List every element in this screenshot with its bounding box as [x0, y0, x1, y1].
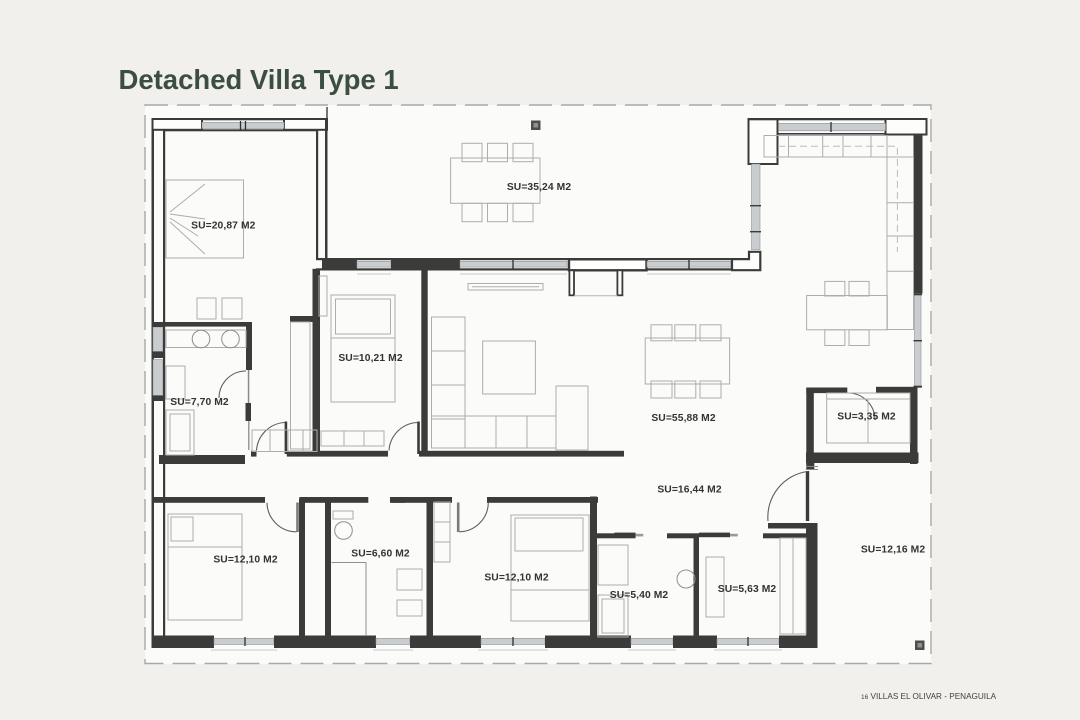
svg-text:SU=6,60 M2: SU=6,60 M2: [351, 549, 410, 560]
svg-text:16 VILLAS EL OLIVAR - PENAGUI: 16 VILLAS EL OLIVAR - PENAGUILA: [861, 692, 997, 701]
svg-text:SU=16,44 M2: SU=16,44 M2: [657, 485, 722, 496]
svg-text:SU=5,63 M2: SU=5,63 M2: [718, 584, 777, 595]
svg-text:SU=7,70 M2: SU=7,70 M2: [170, 397, 229, 408]
svg-text:Detached Villa Type 1: Detached Villa Type 1: [119, 64, 399, 95]
svg-text:SU=55,88 M2: SU=55,88 M2: [651, 413, 716, 424]
svg-text:SU=12,10 M2: SU=12,10 M2: [484, 573, 549, 584]
svg-text:SU=5,40 M2: SU=5,40 M2: [610, 590, 669, 601]
svg-text:SU=10,21 M2: SU=10,21 M2: [338, 353, 403, 364]
svg-text:SU=12,10 M2: SU=12,10 M2: [213, 555, 278, 566]
svg-text:SU=35,24 M2: SU=35,24 M2: [507, 182, 572, 193]
svg-text:SU=3,35 M2: SU=3,35 M2: [837, 412, 896, 423]
svg-text:SU=20,87 M2: SU=20,87 M2: [191, 221, 256, 232]
svg-text:SU=12,16 M2: SU=12,16 M2: [861, 545, 926, 556]
